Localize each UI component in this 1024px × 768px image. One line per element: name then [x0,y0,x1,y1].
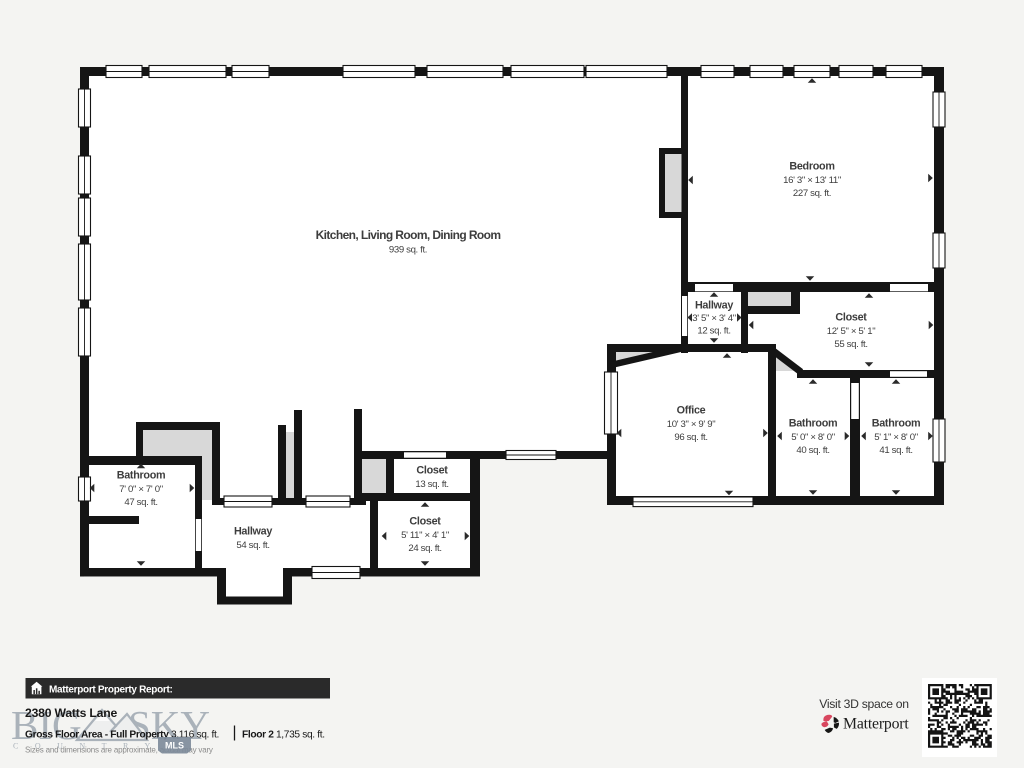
svg-text:Closet: Closet [409,516,441,528]
svg-text:Office: Office [677,405,706,417]
svg-text:5' 1" × 8' 0": 5' 1" × 8' 0" [874,432,918,443]
svg-text:7' 0" × 7' 0": 7' 0" × 7' 0" [119,484,163,495]
svg-text:41 sq. ft.: 41 sq. ft. [879,445,912,456]
svg-text:47 sq. ft.: 47 sq. ft. [124,497,157,508]
svg-text:Matterport Property Report:: Matterport Property Report: [49,685,173,696]
svg-text:MLS: MLS [165,741,184,751]
svg-text:Bedroom: Bedroom [789,161,834,173]
svg-text:10' 3" × 9' 9": 10' 3" × 9' 9" [667,419,716,430]
svg-text:Floor 2 1,735 sq. ft.: Floor 2 1,735 sq. ft. [242,730,325,741]
svg-text:12' 5" × 5' 1": 12' 5" × 5' 1" [827,326,876,337]
svg-text:5' 11" × 4' 1": 5' 11" × 4' 1" [401,530,449,541]
svg-text:16' 3" × 13' 11": 16' 3" × 13' 11" [783,175,841,186]
svg-text:40 sq. ft.: 40 sq. ft. [796,445,829,456]
svg-text:Bathroom: Bathroom [872,418,921,430]
svg-text:Matterport: Matterport [843,716,909,733]
svg-text:24 sq. ft.: 24 sq. ft. [408,543,441,554]
svg-text:Visit 3D space on: Visit 3D space on [819,697,909,711]
svg-text:939 sq. ft.: 939 sq. ft. [389,245,427,256]
svg-text:5' 0" × 8' 0": 5' 0" × 8' 0" [791,432,835,443]
svg-text:Bathroom: Bathroom [789,418,838,430]
svg-text:Bathroom: Bathroom [117,470,166,482]
svg-text:Hallway: Hallway [695,300,733,312]
svg-text:54 sq. ft.: 54 sq. ft. [236,540,269,551]
svg-text:3' 5" × 3' 4": 3' 5" × 3' 4" [692,313,736,324]
svg-text:Closet: Closet [835,312,867,324]
svg-text:12 sq. ft.: 12 sq. ft. [697,326,730,337]
svg-text:96 sq. ft.: 96 sq. ft. [674,432,707,443]
svg-text:Closet: Closet [416,465,448,477]
svg-text:2380 Watts Lane: 2380 Watts Lane [25,706,117,720]
svg-text:Kitchen, Living Room, Dining R: Kitchen, Living Room, Dining Room [316,228,501,242]
svg-text:227 sq. ft.: 227 sq. ft. [793,188,831,199]
svg-text:55 sq. ft.: 55 sq. ft. [834,339,867,350]
svg-text:Hallway: Hallway [234,526,272,538]
svg-text:13 sq. ft.: 13 sq. ft. [415,479,448,490]
